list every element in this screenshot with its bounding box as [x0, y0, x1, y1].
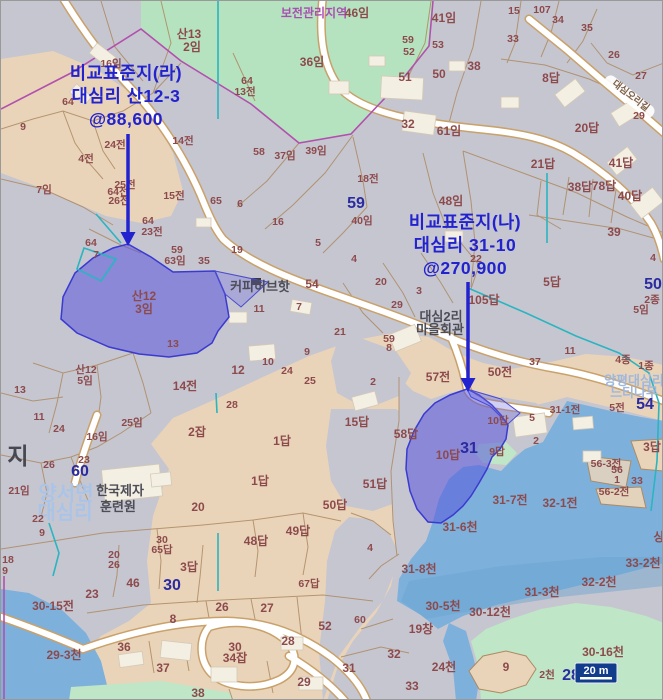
parcel-label: 11: [33, 411, 44, 423]
parcel-label: 7: [296, 301, 302, 313]
parcel-label: 19창: [409, 621, 433, 636]
parcel-label: 산12: [132, 288, 157, 303]
parcel-label: 24: [281, 365, 293, 377]
annotation-text: @88,600: [89, 109, 163, 129]
parcel-label: 65: [210, 195, 222, 207]
parcel-label: 29: [297, 675, 311, 689]
map-canvas[interactable]: 산132임보전관리지역46임36임16임6413전41임151073435332…: [1, 1, 663, 700]
parcel-label: 32-2천: [581, 574, 616, 589]
parcel-label: 40임: [351, 214, 372, 227]
parcel-label: 26: [108, 559, 120, 571]
parcel-label: 5임: [77, 374, 93, 387]
place-name-label: 마을회관: [416, 322, 464, 337]
parcel-label: 26: [215, 600, 229, 614]
lot-number-label: 54: [636, 396, 654, 413]
parcel-label: 1종: [638, 360, 654, 372]
parcel-label: 48임: [439, 194, 463, 208]
parcel-label: 8: [170, 612, 177, 626]
parcel-label: 4: [367, 542, 373, 554]
parcel-label: 23전: [141, 225, 162, 238]
parcel-label: 33: [631, 475, 643, 487]
parcel-label: 37임: [274, 149, 295, 162]
parcel-label: 5답: [543, 274, 561, 289]
parcel-label: 25임: [121, 416, 142, 429]
parcel-label: 9: [39, 527, 45, 539]
parcel-label: 13: [167, 338, 179, 350]
parcel-label: 39임: [305, 144, 326, 157]
place-name-label: 커피허브핫: [230, 279, 290, 294]
parcel-label: 29: [391, 299, 403, 311]
parcel-label: 5: [315, 237, 321, 249]
parcel-label: 39: [607, 225, 621, 239]
parcel-label: 52: [403, 46, 415, 58]
parcel-label: 37: [156, 661, 170, 675]
parcel-label: 34잡: [223, 650, 247, 665]
annotation-text: 비교표준지(나): [409, 212, 521, 232]
parcel-label: 32-1전: [542, 495, 577, 510]
parcel-label: 28: [281, 634, 295, 648]
parcel-label: 58: [253, 146, 265, 158]
place-name-label: 한국제자: [96, 483, 144, 498]
parcel-label: 33: [405, 679, 419, 693]
parcel-label: 35: [581, 22, 593, 34]
parcel-label: 30-12천: [469, 604, 511, 619]
parcel-label: 20답: [575, 120, 599, 135]
parcel-label: 64: [85, 237, 97, 249]
parcel-label: 산13: [177, 26, 202, 41]
parcel-label: 4종: [615, 354, 631, 366]
parcel-label: 11: [253, 303, 264, 315]
parcel-label: 31-7전: [492, 492, 527, 507]
parcel-label: 50: [432, 67, 446, 81]
parcel-label: 10: [262, 356, 274, 368]
lot-number-label: 50: [644, 276, 662, 293]
parcel-label: 13: [14, 384, 26, 396]
parcel-label: 50전: [488, 364, 512, 379]
parcel-label: 4: [351, 253, 357, 265]
parcel-label: 7임: [36, 183, 52, 196]
parcel-label: 38답: [568, 179, 592, 194]
parcel-label: 46: [126, 576, 140, 590]
parcel-label: 57전: [426, 369, 450, 384]
parcel-label: 41답: [609, 155, 633, 170]
parcel-label: 65답: [151, 544, 173, 556]
parcel-label: 51: [398, 70, 412, 84]
parcel-label: 8답: [542, 70, 560, 85]
lot-number-label: 30: [163, 577, 181, 594]
parcel-label: 29-3천: [46, 647, 81, 662]
annotation-text: 대심리 산12-3: [72, 86, 181, 106]
parcel-label: 50답: [323, 497, 347, 512]
parcel-label: 30-5천: [425, 598, 460, 613]
parcel-label: 28: [226, 399, 238, 411]
parcel-label: 15답: [345, 414, 369, 429]
parcel-label: 13전: [234, 85, 255, 98]
parcel-label: 22: [32, 513, 44, 525]
parcel-label: 24천: [432, 659, 456, 674]
parcel-label: 59: [402, 34, 414, 46]
parcel-label: 1답: [273, 433, 291, 448]
parcel-label: 31-1전: [550, 403, 581, 416]
parcel-label: 대심리: [37, 501, 92, 524]
parcel-label: 31: [342, 661, 356, 675]
parcel-label: 9: [20, 121, 26, 133]
parcel-label: 78답: [592, 178, 616, 193]
parcel-label: 32: [401, 117, 415, 131]
parcel-label: 63임: [164, 254, 185, 267]
parcel-label: 61임: [437, 124, 461, 138]
parcel-label: 11: [564, 345, 575, 357]
zone-label: 보전관리지역: [281, 5, 347, 20]
parcel-label: 25: [304, 375, 316, 387]
parcel-label: 24전: [104, 138, 125, 151]
parcel-label: 49답: [286, 523, 310, 538]
parcel-label: 19: [231, 244, 243, 256]
parcel-label: 5: [529, 412, 535, 424]
parcel-label: 31-6천: [442, 519, 477, 534]
parcel-label: 56-2전: [599, 485, 630, 498]
cadastral-map-view[interactable]: 산132임보전관리지역46임36임16임6413전41임151073435332…: [0, 0, 663, 700]
parcel-label: 16: [272, 216, 284, 228]
annotation-text: 대심리 31-10: [414, 235, 516, 255]
parcel-label: 46임: [345, 6, 369, 20]
parcel-label: 15: [508, 5, 520, 17]
parcel-label: 1답: [251, 473, 269, 488]
parcel-label: 9: [2, 565, 8, 577]
parcel-label: 20: [191, 500, 205, 514]
parcel-label: 4: [650, 252, 656, 264]
parcel-label: 3답: [180, 559, 198, 574]
parcel-label: 8: [386, 342, 392, 354]
parcel-label: 38: [191, 686, 205, 700]
parcel-label: 60: [354, 614, 366, 626]
parcel-label: 2천: [539, 668, 555, 681]
parcel-label: 14전: [173, 378, 197, 393]
parcel-label: 지: [7, 443, 28, 469]
parcel-label: 2: [370, 376, 376, 388]
parcel-label: 33: [507, 33, 519, 45]
parcel-label: 32: [387, 647, 401, 661]
parcel-label: 10답: [436, 447, 460, 462]
parcel-label: 30-16천: [582, 644, 624, 659]
parcel-label: 1: [614, 474, 620, 486]
parcel-label: 58답: [394, 426, 418, 441]
annotation-text: 비교표준지(라): [70, 63, 182, 83]
parcel-label: 23: [85, 587, 99, 601]
lot-number-label: 60: [71, 463, 89, 480]
parcel-label: 3임: [135, 302, 153, 316]
parcel-label: 31-8천: [401, 561, 436, 576]
parcel-label: 7: [93, 249, 99, 261]
place-name-label: 훈련원: [100, 499, 136, 514]
parcel-label: 40답: [618, 188, 642, 203]
annotation-text: @270,900: [423, 258, 507, 278]
parcel-label: 3답: [643, 439, 661, 454]
parcel-label: 10답: [487, 415, 509, 427]
parcel-label: 2임: [183, 40, 201, 54]
parcel-label: 53: [432, 39, 444, 51]
parcel-label: 52: [318, 619, 332, 633]
parcel-label: 14전: [172, 134, 193, 147]
parcel-label: 24: [53, 423, 65, 435]
parcel-label: 54: [305, 277, 319, 291]
parcel-label: 37: [529, 356, 541, 368]
parcel-label: 51답: [363, 476, 387, 491]
parcel-label: 상: [653, 529, 663, 544]
parcel-label: 15전: [163, 189, 184, 202]
parcel-label: 31-3천: [524, 584, 559, 599]
parcel-label: 12: [231, 363, 245, 377]
parcel-label: 41임: [432, 11, 456, 25]
parcel-label: 16임: [86, 430, 107, 443]
parcel-label: 36임: [300, 55, 324, 69]
parcel-label: 9: [503, 660, 510, 674]
parcel-label: 6: [237, 198, 243, 210]
parcel-label: 35: [198, 255, 210, 267]
lot-number-label: 31: [460, 440, 478, 457]
parcel-label: 21임: [8, 484, 29, 497]
parcel-label: 27: [260, 601, 274, 615]
parcel-label: 67답: [298, 578, 320, 590]
parcel-label: 36: [117, 640, 131, 654]
parcel-label: 5임: [633, 303, 649, 316]
parcel-label: 2잡: [188, 424, 206, 439]
scale-bar: 20 m: [575, 663, 617, 683]
parcel-label: 4전: [78, 152, 94, 165]
parcel-label: 26: [43, 459, 55, 471]
parcel-label: 9답: [489, 446, 505, 458]
parcel-label: 20: [375, 276, 387, 288]
parcel-label: 48답: [244, 533, 268, 548]
parcel-label: 2: [533, 435, 539, 447]
parcel-label: 34: [552, 14, 564, 26]
parcel-label: 26: [608, 49, 620, 61]
parcel-label: 21답: [531, 156, 555, 171]
parcel-label: 30-15전: [32, 598, 74, 613]
parcel-label: 27: [635, 70, 647, 82]
parcel-label: 107: [533, 4, 551, 16]
scale-bar-label: 20 m: [583, 665, 608, 677]
parcel-label: 3: [416, 285, 422, 297]
parcel-label: 33-2천: [625, 555, 660, 570]
parcel-label: 5전: [609, 401, 625, 414]
lot-number-label: 59: [347, 195, 365, 212]
parcel-label: 18전: [357, 172, 378, 185]
parcel-label: 38: [467, 59, 481, 73]
parcel-label: 21: [334, 326, 346, 338]
parcel-label: 105답: [468, 292, 499, 307]
parcel-label: 9: [304, 346, 310, 358]
